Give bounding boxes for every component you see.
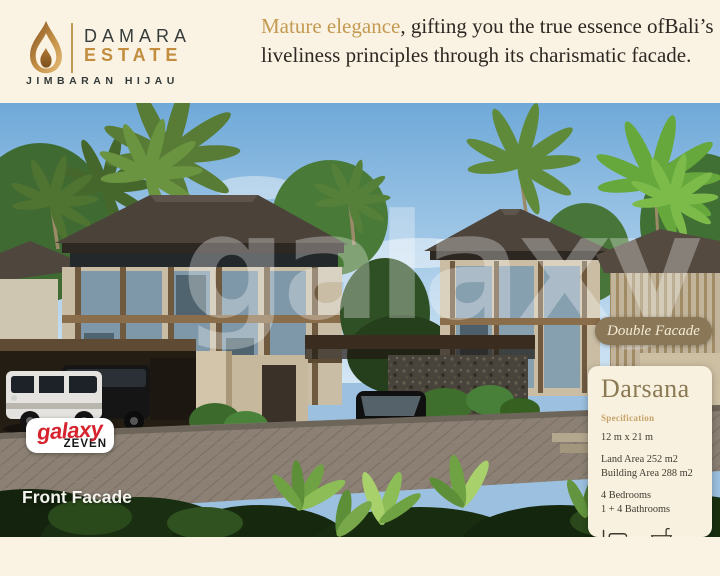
headline: Mature elegance, gifting you the true es…	[261, 12, 716, 69]
land-area: Land Area 252 m2	[601, 453, 704, 467]
bathtub-icon	[650, 527, 673, 537]
flame-icon	[27, 20, 65, 76]
bathrooms: 1 + 4 Bathrooms	[601, 503, 704, 517]
galaxy-brand-text: galaxy	[37, 419, 103, 442]
brand-name-estate: ESTATE	[84, 45, 182, 66]
flyer-page: DAMARA ESTATE JIMBARAN HIJAU Mature eleg…	[0, 0, 720, 576]
villa-render-photo: galaxy Front Facade Double Facade Darsan…	[0, 103, 720, 537]
brand-subtitle: JIMBARAN HIJAU	[26, 75, 179, 87]
badge-label: Double Facade	[607, 323, 700, 340]
bed-count: 4	[633, 536, 638, 537]
double-facade-badge: Double Facade	[595, 317, 712, 345]
unit-dimensions: 12 m x 21 m	[601, 431, 704, 445]
bedrooms: 4 Bedrooms	[601, 489, 704, 503]
logo-divider	[71, 23, 73, 73]
galaxy-zeven-logo: galaxy ZEVEN	[26, 418, 114, 453]
spec-card: Darsana Specification 12 m x 21 m Land A…	[588, 366, 712, 537]
building-area: Building Area 288 m2	[601, 467, 704, 481]
bath-count: 4 + 1	[677, 536, 696, 537]
bed-icon	[601, 528, 629, 537]
headline-highlight: Mature elegance	[261, 14, 400, 38]
spec-section-label: Specification	[601, 413, 704, 423]
unit-title: Darsana	[601, 374, 704, 404]
brand-name: DAMARA	[84, 26, 191, 47]
amenity-icons-row: 4 4 + 1	[601, 527, 704, 537]
photo-caption: Front Facade	[22, 487, 132, 508]
header: DAMARA ESTATE JIMBARAN HIJAU Mature eleg…	[0, 0, 720, 103]
